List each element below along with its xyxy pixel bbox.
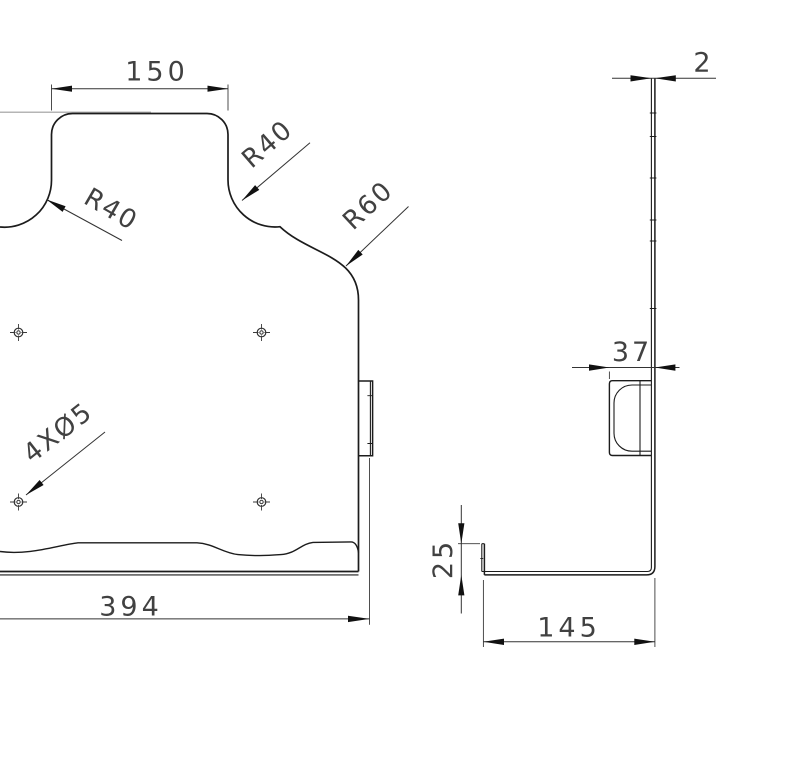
lip-contour-line bbox=[0, 542, 359, 556]
dimension-tab-width: 37 bbox=[572, 337, 680, 379]
arrowhead bbox=[242, 185, 259, 200]
arrowhead-top bbox=[458, 523, 464, 544]
dimension-value: 25 bbox=[428, 539, 459, 579]
front-view: 150 R40 R40 R60 4XØ5 bbox=[0, 57, 409, 625]
arrowhead bbox=[47, 200, 66, 212]
arrowhead-left bbox=[52, 86, 73, 92]
sheet-outer-surface bbox=[484, 78, 655, 575]
dimension-top-width: 150 bbox=[52, 57, 229, 111]
technical-drawing: 150 R40 R40 R60 4XØ5 bbox=[0, 0, 800, 761]
side-view: 2 37 25 145 bbox=[428, 48, 716, 648]
arrowhead-right bbox=[655, 75, 676, 81]
dimension-value: 394 bbox=[99, 592, 163, 623]
radius-value: R40 bbox=[236, 114, 299, 174]
dimension-base-length: 145 bbox=[483, 578, 655, 647]
dimension-value: 150 bbox=[125, 57, 189, 88]
arrowhead-right bbox=[348, 616, 370, 622]
dimension-overall-width: 394 bbox=[0, 458, 370, 625]
arrowhead bbox=[26, 480, 44, 495]
dimension-value: 145 bbox=[537, 613, 601, 644]
arrowhead-right bbox=[208, 86, 229, 92]
sheet-inner-surface bbox=[482, 78, 652, 571]
hole-symbol-top-right bbox=[253, 324, 270, 341]
callout-left-radius: R40 bbox=[47, 183, 144, 241]
drawing-canvas: 150 R40 R40 R60 4XØ5 bbox=[0, 0, 800, 761]
plate-outline bbox=[0, 114, 359, 572]
dimension-value: 2 bbox=[693, 48, 710, 79]
arrowhead-right bbox=[634, 639, 655, 645]
hole-callout-value: 4XØ5 bbox=[18, 397, 99, 470]
dimension-thickness: 2 bbox=[612, 48, 716, 82]
arrowhead-left bbox=[631, 75, 652, 81]
hole-symbol-top-left bbox=[10, 324, 27, 341]
radius-value: R60 bbox=[337, 175, 399, 236]
callout-holes: 4XØ5 bbox=[18, 397, 105, 495]
dimension-value: 37 bbox=[612, 337, 652, 368]
side-tab-inner-contour bbox=[614, 385, 651, 451]
arrowhead-left bbox=[483, 639, 504, 645]
arrowhead-right bbox=[655, 364, 676, 370]
radius-value: R40 bbox=[79, 183, 143, 238]
arrowhead-bottom bbox=[458, 575, 464, 596]
dimension-lip-height: 25 bbox=[428, 505, 480, 614]
side-tab-outline bbox=[609, 381, 651, 456]
hole-symbol-bottom-left bbox=[10, 494, 27, 511]
callout-lower-right-radius: R60 bbox=[337, 175, 408, 266]
arrowhead-left bbox=[589, 364, 609, 370]
arrowhead bbox=[346, 250, 363, 266]
hole-symbol-bottom-right bbox=[253, 494, 270, 511]
callout-right-radius: R40 bbox=[236, 114, 310, 200]
